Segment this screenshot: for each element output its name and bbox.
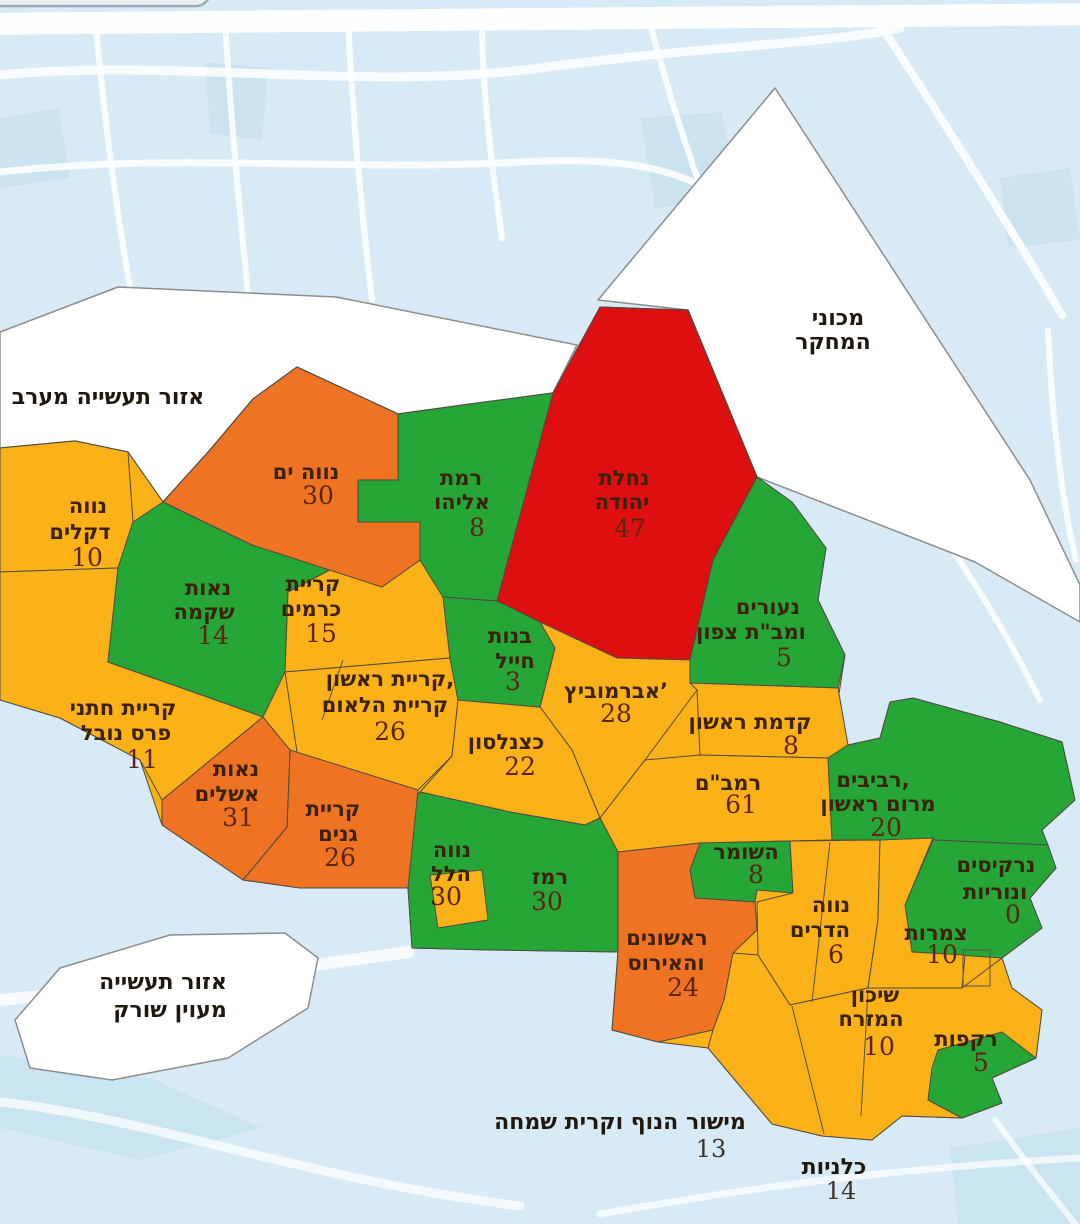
map-canvas: נווה ים 30 רמת אליהו 8 נחלת יהודה 47 נוו… [0, 0, 1080, 1224]
region-name: קריית הלאום [322, 693, 448, 717]
region-name: נאות [185, 576, 231, 600]
region-name: רביבים, [836, 768, 909, 792]
region-name: דקלים [49, 520, 110, 544]
zone-label: מעוין שורק [113, 998, 227, 1023]
region-name: ראשונים [626, 926, 707, 950]
region-value: 24 [667, 973, 699, 1002]
region-name: יהודה [595, 490, 650, 514]
region-value: 8 [469, 513, 485, 542]
region-name: נווה [812, 893, 850, 917]
region-name: אליהו [434, 490, 490, 514]
region-name: נעורים [736, 595, 800, 619]
region-name: נווה [433, 838, 471, 862]
zone-label: אזור תעשייה [99, 970, 227, 995]
neighborhood-map: נווה ים 30 רמת אליהו 8 נחלת יהודה 47 נוו… [0, 0, 1080, 1224]
region-name: רמז [532, 865, 568, 889]
region-value: 0 [1005, 900, 1021, 929]
region-value: 26 [374, 717, 406, 746]
region-value: 20 [870, 813, 902, 842]
region-value: 30 [302, 481, 334, 510]
region-value: 47 [614, 514, 646, 543]
region-value: 5 [973, 1048, 989, 1077]
region-name: קריית [306, 797, 361, 821]
region-value: 22 [504, 752, 536, 781]
region-name: השומר [713, 840, 778, 864]
region-name: המזרח [838, 1007, 903, 1031]
region-value: 31 [222, 803, 254, 832]
zone-label: המחקר [795, 330, 871, 355]
region-value: 15 [305, 619, 337, 648]
region-value: 10 [926, 940, 958, 969]
region-name: בנות [488, 624, 532, 648]
region-name: פרס נובל [81, 721, 171, 745]
region-value: 26 [324, 843, 356, 872]
region-value: 5 [776, 643, 792, 672]
region-name: הדרים [790, 918, 850, 942]
region-name: נחלת [599, 466, 650, 490]
region-value: 10 [71, 543, 103, 572]
zone-label: אזור תעשייה מערב [12, 385, 205, 410]
region-value: 28 [600, 699, 632, 728]
region-name: נרקיסים [957, 853, 1036, 877]
region-value: 3 [505, 667, 521, 696]
region-value: 11 [126, 745, 158, 774]
region-name: נווה [69, 494, 107, 518]
outside-value: 14 [826, 1177, 857, 1205]
region-value: 10 [863, 1032, 895, 1061]
region-value: 6 [828, 940, 844, 969]
region-value: 30 [531, 887, 563, 916]
region-value: 8 [748, 860, 764, 889]
region-name: כצנלסון [468, 730, 545, 754]
region-name: רמת [440, 466, 482, 490]
region-name: קריית ראשון, [326, 667, 454, 691]
region-neve-dkalim[interactable] [0, 441, 133, 572]
region-name: שיכון [851, 983, 899, 1007]
region-name: כרמים [281, 597, 342, 621]
region-name: והאירוס [627, 951, 704, 975]
outside-label: מישור הנוף וקרית שמחה [494, 1110, 746, 1135]
region-value: 14 [197, 621, 229, 650]
region-name: נאות [213, 757, 259, 781]
region-value: 8 [783, 731, 799, 760]
region-name: קריית חתני [70, 696, 177, 720]
top-left-rounded-edge [0, 0, 210, 6]
label-ramez: רמז 30 [531, 865, 568, 916]
region-value: 30 [430, 882, 462, 911]
region-name: קריית [286, 572, 341, 596]
region-value: 61 [725, 790, 757, 819]
outside-value: 13 [696, 1135, 727, 1163]
region-name: ומב"ת צפון [696, 620, 806, 644]
zone-label: מכוני [812, 306, 864, 331]
